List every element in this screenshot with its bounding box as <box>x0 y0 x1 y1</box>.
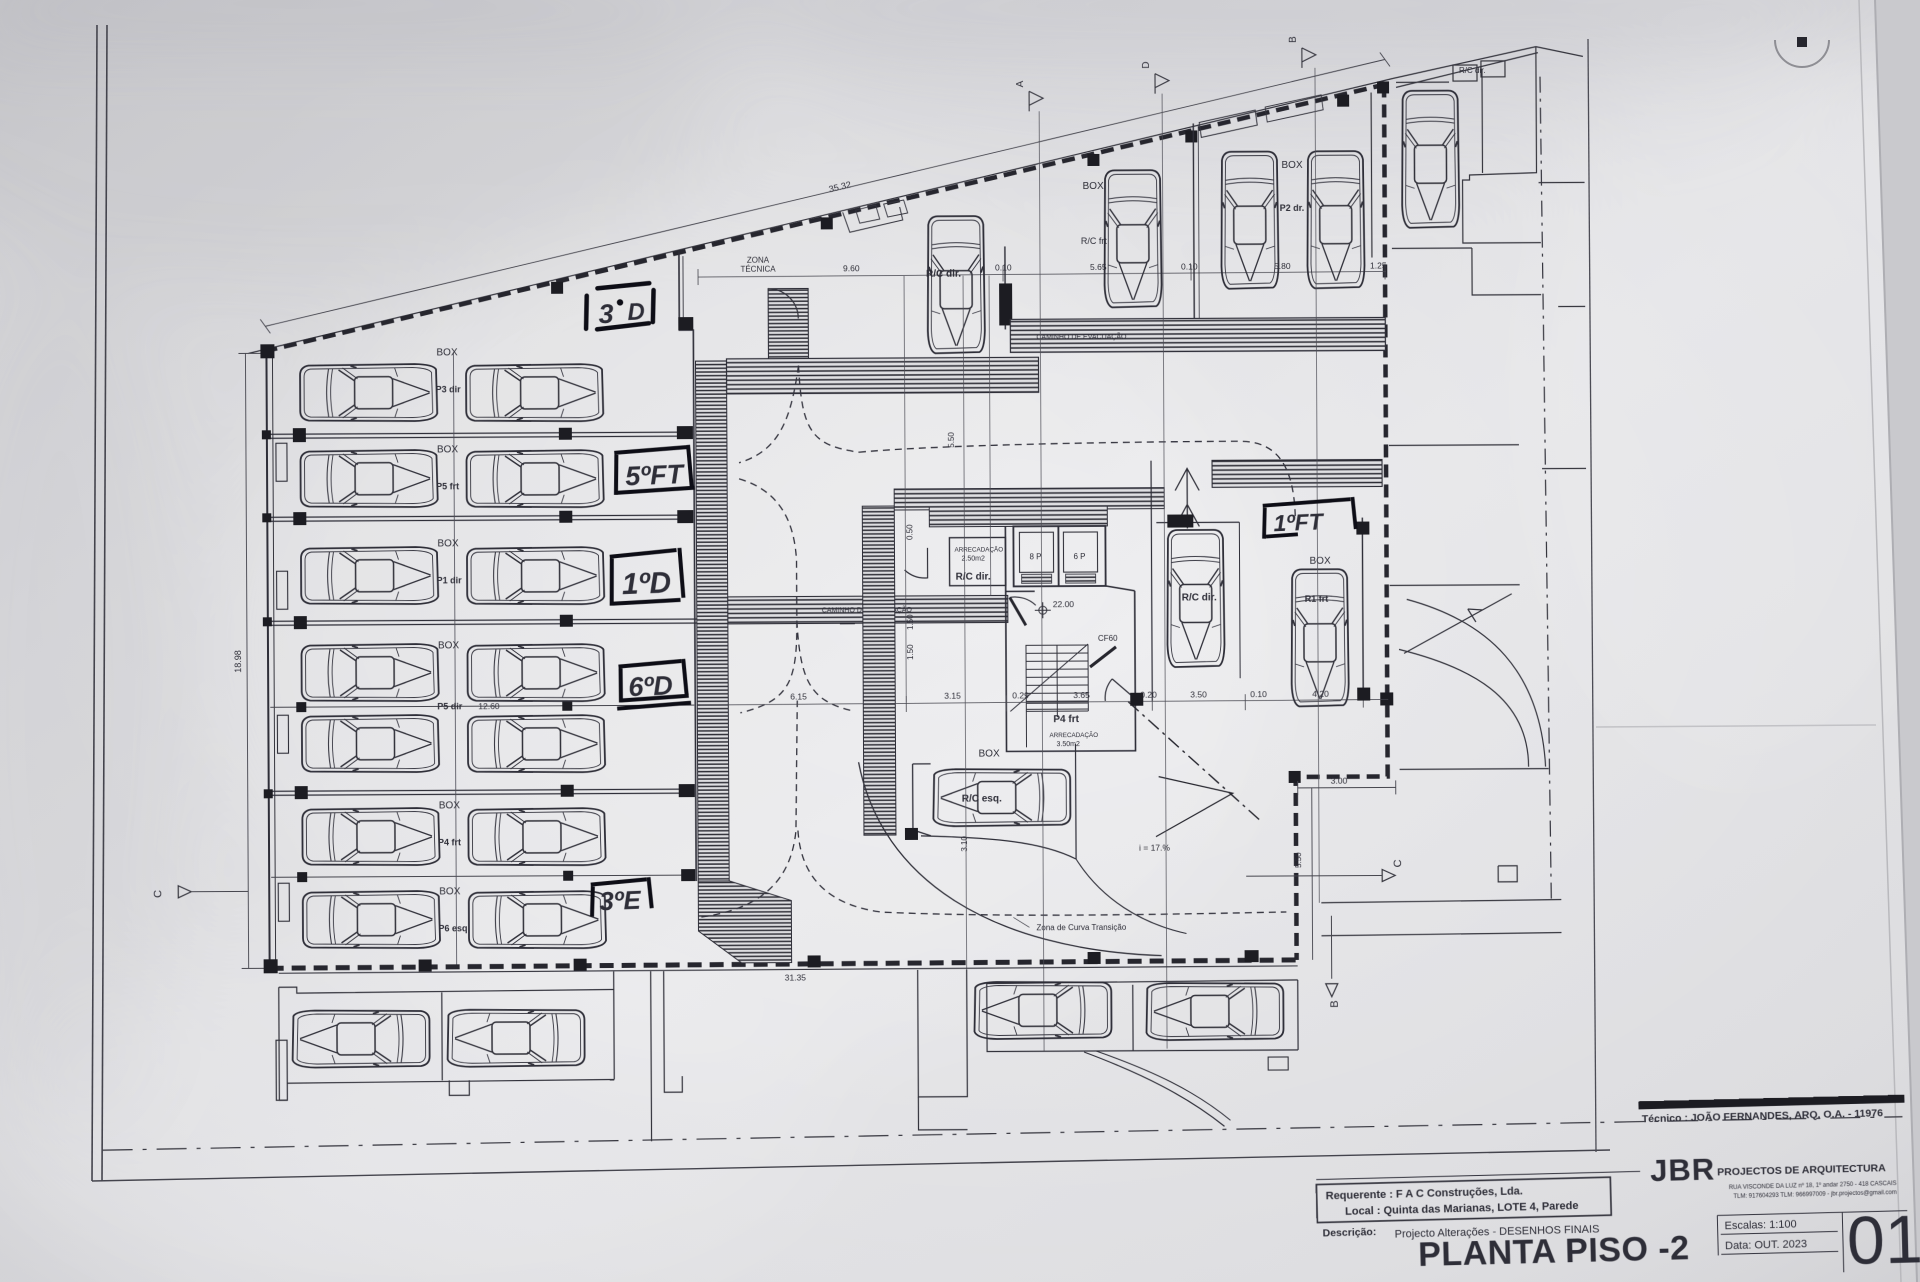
svg-text:22.00: 22.00 <box>1053 599 1075 609</box>
svg-text:1ºFT: 1ºFT <box>1273 508 1325 536</box>
svg-text:D: D <box>1141 61 1152 68</box>
svg-text:P4 frt: P4 frt <box>1053 714 1079 725</box>
svg-text:1ºD: 1ºD <box>621 566 672 601</box>
svg-text:0.29: 0.29 <box>1012 690 1029 700</box>
svg-text:P5 dir: P5 dir <box>437 701 463 711</box>
svg-text:BOX: BOX <box>439 886 461 897</box>
svg-text:1.50: 1.50 <box>906 614 915 630</box>
svg-text:1.50: 1.50 <box>906 644 915 660</box>
svg-text:6ºD: 6ºD <box>628 670 674 702</box>
svg-text:0.10: 0.10 <box>1250 689 1267 699</box>
svg-text:Zona de Curva Transição: Zona de Curva Transição <box>1036 923 1126 932</box>
svg-text:3.50m2: 3.50m2 <box>1056 741 1079 748</box>
svg-text:BOX: BOX <box>437 444 459 455</box>
svg-text:3: 3 <box>598 299 614 330</box>
svg-text:01: 01 <box>1846 1201 1920 1279</box>
svg-text:3.50: 3.50 <box>1190 689 1207 699</box>
svg-text:ARRECADAÇÃO: ARRECADAÇÃO <box>954 544 1003 553</box>
svg-text:TÉCNICA: TÉCNICA <box>740 265 776 274</box>
svg-text:ZONA: ZONA <box>747 256 770 265</box>
svg-text:P4 frt: P4 frt <box>438 837 461 847</box>
svg-text:PLANTA PISO -2: PLANTA PISO -2 <box>1418 1229 1690 1274</box>
svg-text:5ºFT: 5ºFT <box>625 459 687 491</box>
svg-text:P6 esq: P6 esq <box>438 923 467 933</box>
svg-text:R/C esq.: R/C esq. <box>962 793 1002 804</box>
svg-text:2.50m2: 2.50m2 <box>962 556 985 563</box>
svg-text:31.35: 31.35 <box>785 972 807 982</box>
svg-text:R1 frt: R1 frt <box>1305 594 1329 604</box>
svg-text:P5 frt: P5 frt <box>436 481 459 491</box>
svg-text:P2 dr.: P2 dr. <box>1280 203 1305 213</box>
svg-text:C: C <box>1392 859 1404 867</box>
svg-text:0.50: 0.50 <box>905 524 914 540</box>
svg-text:3.15: 3.15 <box>944 691 961 701</box>
svg-text:1.25: 1.25 <box>1370 260 1387 270</box>
svg-text:5.80: 5.80 <box>1274 261 1291 271</box>
svg-text:Escalas: 1:100: Escalas: 1:100 <box>1724 1218 1796 1232</box>
svg-text:R/C dir.: R/C dir. <box>926 269 961 280</box>
svg-text:12.60: 12.60 <box>478 701 500 711</box>
svg-text:R/C frt: R/C frt <box>1081 236 1108 246</box>
svg-text:3.65: 3.65 <box>1073 690 1090 700</box>
svg-text:BOX: BOX <box>1310 556 1332 567</box>
svg-text:5.50: 5.50 <box>1294 852 1303 868</box>
svg-text:BOX: BOX <box>439 800 461 811</box>
svg-text:D: D <box>627 298 645 326</box>
svg-text:18.98: 18.98 <box>233 650 243 673</box>
svg-text:BOX: BOX <box>1281 160 1303 171</box>
svg-text:C: C <box>152 890 164 898</box>
svg-text:P3 dir: P3 dir <box>436 384 462 394</box>
svg-text:BOX: BOX <box>436 347 458 358</box>
svg-text:6 P: 6 P <box>1073 552 1085 561</box>
svg-text:Data: OUT. 2023: Data: OUT. 2023 <box>1725 1238 1807 1252</box>
svg-text:3ºE: 3ºE <box>599 885 642 917</box>
svg-text:R/C dir.: R/C dir. <box>1182 592 1217 603</box>
svg-text:B: B <box>1288 36 1299 43</box>
svg-text:B: B <box>1329 1000 1341 1007</box>
svg-text:P1 dir: P1 dir <box>437 575 463 585</box>
svg-text:3.00: 3.00 <box>1331 776 1348 786</box>
svg-text:8 P: 8 P <box>1029 552 1041 561</box>
svg-text:BOX: BOX <box>438 640 460 651</box>
svg-text:Descrição:: Descrição: <box>1322 1226 1376 1239</box>
svg-text:6.15: 6.15 <box>790 691 807 701</box>
svg-text:JBR: JBR <box>1650 1151 1716 1188</box>
svg-text:R/C dir.: R/C dir. <box>956 572 991 583</box>
svg-text:0.10: 0.10 <box>1181 261 1198 271</box>
svg-text:BOX: BOX <box>437 538 459 549</box>
svg-text:BOX: BOX <box>979 748 1001 759</box>
svg-text:CF60: CF60 <box>1098 634 1118 643</box>
svg-text:CAMINHO DE EVACUAÇÃO: CAMINHO DE EVACUAÇÃO <box>1036 332 1127 341</box>
svg-text:0.10: 0.10 <box>995 262 1012 272</box>
svg-text:9.60: 9.60 <box>843 263 860 273</box>
svg-text:ARRECADAÇÃO: ARRECADAÇÃO <box>1049 730 1098 739</box>
svg-text:A: A <box>1015 80 1026 87</box>
svg-text:5.50: 5.50 <box>947 432 956 448</box>
svg-text:BOX: BOX <box>1083 181 1105 192</box>
